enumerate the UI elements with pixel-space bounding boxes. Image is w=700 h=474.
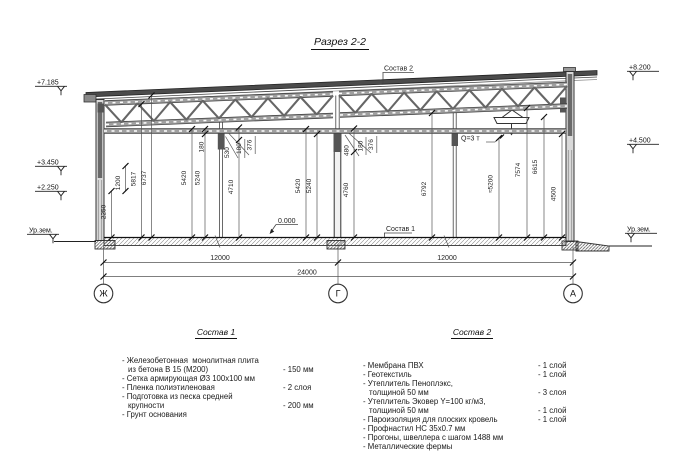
sostav1-leader <box>384 233 412 237</box>
parapet-cap <box>564 68 576 72</box>
elevation-left-2250: +2.250 <box>37 184 59 191</box>
material-row: - Подготовка из песка средней <box>122 392 233 401</box>
material-row: - Утеплитель Эковер Y=100 кг/м3, <box>363 397 486 406</box>
material-row: из бетона В 15 (М200)- 150 мм <box>128 365 208 374</box>
elevation-right-4500: +4.500 <box>629 137 651 144</box>
ground-level-label-right: Ур.зем. <box>627 226 651 233</box>
crane-hoist <box>486 110 529 142</box>
material-row: крупности- 200 мм <box>128 401 164 410</box>
dim-5240-left: 5240 <box>195 170 202 185</box>
dim-12000-right: 12000 <box>437 255 457 262</box>
dim-4710: 4710 <box>228 179 235 194</box>
zero-level-leader <box>270 225 298 235</box>
material-row: толщиной 50 мм- 1 слой <box>369 406 429 415</box>
sostav2-header: Состав 2 <box>362 327 582 337</box>
crane-capacity-label: Q=3 т <box>461 136 480 143</box>
foundation-center <box>327 241 345 250</box>
elevation-left-7185: +7.185 <box>37 79 59 86</box>
dim-12000-left: 12000 <box>210 255 230 262</box>
drawing-sheet: +7.185 +3.450 +2.250 Ур.зем. +8.200 +4.5… <box>0 0 700 474</box>
material-row: - Пленка полиэтиленовая- 2 слоя <box>122 383 215 392</box>
roof-assembly-callout: Состав 2 <box>384 66 413 73</box>
elevation-left-3450: +3.450 <box>37 159 59 166</box>
foundation-left <box>95 241 115 250</box>
dim-6792: 6792 <box>421 181 428 196</box>
axis-label-a: А <box>570 289 576 299</box>
material-row: - Прогоны, швеллера с шагом 1488 мм <box>363 433 503 442</box>
dim-530: 530 <box>224 147 231 158</box>
sostav1-header: Состав 1 <box>120 327 312 337</box>
dim-7574: 7574 <box>515 162 522 177</box>
dim-24000-total: 24000 <box>297 270 317 277</box>
dim-5817: 5817 <box>131 171 138 186</box>
callout-376-center: 376 <box>368 139 375 150</box>
ramp <box>576 242 609 252</box>
material-row: - Профнастил НС 35х0.7 мм <box>363 424 465 433</box>
ground-level-label-left: Ур.зем. <box>29 227 53 234</box>
dim-5420-center: 5420 <box>295 178 302 193</box>
dim-6615: 6615 <box>532 159 539 174</box>
section-title: Разрез 2-2 <box>278 36 402 48</box>
dim-5240-center: 5240 <box>306 178 313 193</box>
dim-4760: 4760 <box>343 182 350 197</box>
material-row: - Грунт основания <box>122 410 187 419</box>
callout-180-left: 180 <box>236 143 243 154</box>
axis-label-g: Г <box>336 289 341 299</box>
elevation-right-8200: +8.200 <box>629 64 651 71</box>
dim-180-left: 180 <box>199 141 206 152</box>
material-row: толщиной 50 мм- 3 слоя <box>369 388 429 397</box>
axis-label-zh: Ж <box>99 289 108 299</box>
material-row: - Металлические фермы <box>363 442 452 451</box>
material-row: - Пароизоляция для плоских кровель- 1 сл… <box>363 415 498 424</box>
material-row: - Сетка армирующая Ø3 100х100 мм <box>122 374 255 383</box>
material-row: - Геотекстиль- 1 слой <box>363 370 412 379</box>
dim-6737: 6737 <box>141 170 148 185</box>
dim-5200: ≈5200 <box>488 175 495 193</box>
material-row: - Железобетонная монолитная плита <box>122 356 259 365</box>
dim-2250: 2250 <box>101 204 108 219</box>
callout-376-left: 376 <box>247 139 254 150</box>
dim-480: 480 <box>344 145 351 156</box>
zero-level-label: 0.000 <box>278 218 296 225</box>
dim-4500: 4500 <box>551 186 558 201</box>
dim-1200: 1200 <box>115 175 122 190</box>
callout-180-center: 180 <box>358 140 365 151</box>
floor-assembly-callout: Состав 1 <box>386 226 415 233</box>
intermediate-post-left <box>218 122 225 238</box>
eave-block <box>84 95 96 103</box>
dim-5420-left: 5420 <box>181 170 188 185</box>
section-drawing: +7.185 +3.450 +2.250 Ур.зем. +8.200 +4.5… <box>0 0 700 474</box>
material-row: - Мембрана ПВХ- 1 слой <box>363 361 424 370</box>
material-row: - Утеплитель Пеноплэкс, <box>363 379 453 388</box>
